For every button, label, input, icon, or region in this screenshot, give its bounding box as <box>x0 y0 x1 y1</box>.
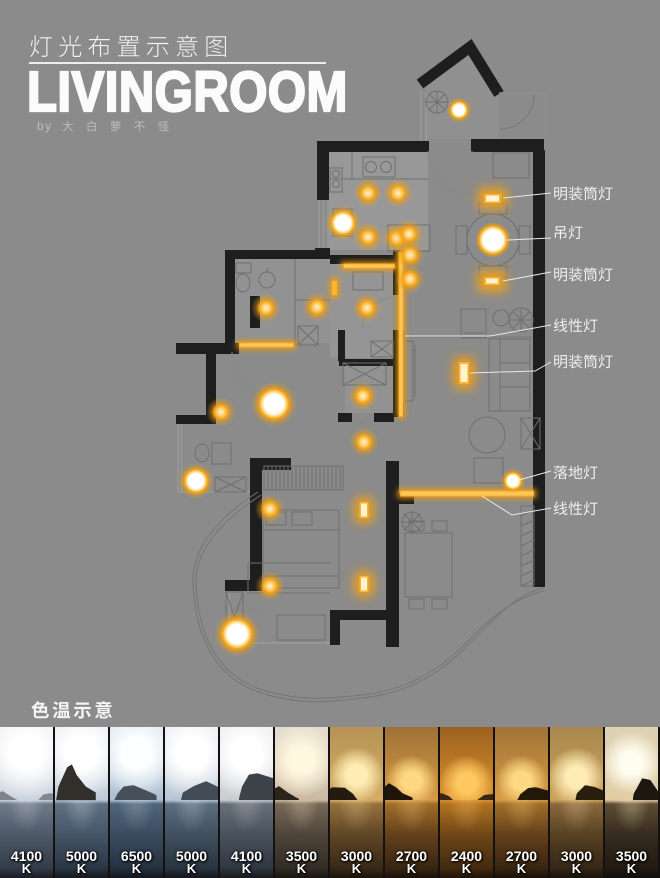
svg-text:by: by <box>37 119 53 133</box>
